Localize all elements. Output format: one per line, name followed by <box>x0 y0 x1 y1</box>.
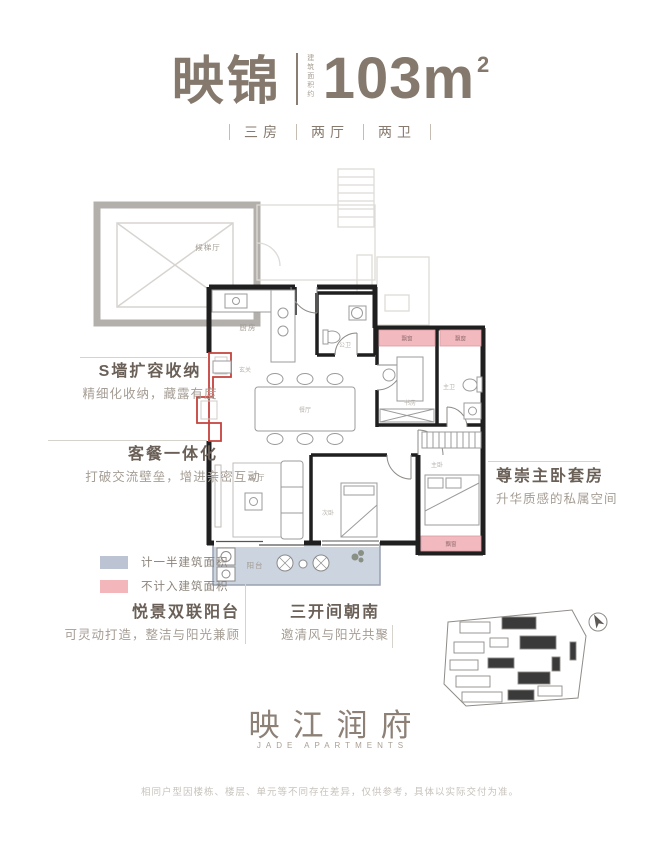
legend: 计一半建筑面积 不计入建筑面积 <box>100 554 229 602</box>
annotation-balcony-desc: 可灵动打造，整洁与阳光兼顾 <box>45 626 240 644</box>
spec-row: 三房 两厅 两卫 <box>0 124 660 140</box>
study: 书房 <box>380 357 434 422</box>
balcony: 阳台 <box>213 543 380 585</box>
project-logo: 映江润府 <box>0 700 660 745</box>
area-superscript: 2 <box>477 52 490 77</box>
annotation-south-desc: 邀清风与阳光共聚 <box>255 626 415 644</box>
lobby-label: 候梯厅 <box>195 242 221 252</box>
kitchen-label: 厨房 <box>240 322 257 332</box>
area-number: 103m <box>323 46 475 111</box>
annotation-balcony-title: 悦景双联阳台 <box>45 603 240 623</box>
legend-excluded-label: 不计入建筑面积 <box>141 578 229 594</box>
disclaimer-text: 相同户型因楼栋、楼层、单元等不同存在差异，仅供参考，具体以实际交付为准。 <box>0 784 660 798</box>
guest-bathroom: 公卫 <box>323 306 366 349</box>
annotation-balcony: 悦景双联阳台 可灵动打造，整洁与阳光兼顾 <box>45 603 240 644</box>
master-bathroom: 主卫 <box>443 377 482 419</box>
legend-excluded-swatch <box>100 580 128 593</box>
dining-label: 餐厅 <box>299 406 311 414</box>
leader-line-balcony <box>245 572 246 644</box>
annotation-dining-title: 客餐一体化 <box>28 445 318 465</box>
annotation-dining: 客餐一体化 打破交流壁垒，增进亲密互动 <box>28 445 318 486</box>
annotation-s-wall-desc: 精细化收纳，藏露有度 <box>35 385 265 403</box>
dining-room: 餐厅 <box>255 374 355 445</box>
leader-line-s-wall <box>80 357 207 358</box>
area-prefix-label: 建筑面积约 <box>305 54 315 102</box>
header: 映锦 建筑面积约 103m2 <box>0 50 660 108</box>
second-bedroom: 次卧 <box>322 483 377 537</box>
bay-window-label: 飘窗 <box>401 335 413 343</box>
header-divider <box>296 53 298 105</box>
spec-bedrooms: 三房 <box>229 124 296 140</box>
annotation-south: 三开间朝南 邀清风与阳光共聚 <box>255 603 415 644</box>
bay-window-label: 飘窗 <box>445 540 457 548</box>
area-value: 103m2 <box>323 50 489 108</box>
legend-half-area-swatch <box>100 556 128 569</box>
bay-window-label: 飘窗 <box>455 335 467 343</box>
compass-icon <box>589 612 607 631</box>
leader-line-dining <box>48 440 207 441</box>
master-bath-label: 主卫 <box>443 383 455 391</box>
project-logo-en: JADE APARTMENTS <box>0 741 660 750</box>
spec-halls: 两厅 <box>296 124 363 140</box>
annotation-south-title: 三开间朝南 <box>255 603 415 623</box>
floorplan-poster: 映锦 建筑面积约 103m2 三房 两厅 两卫 候梯厅 <box>0 0 660 841</box>
guest-bath-label: 公卫 <box>339 342 351 349</box>
annotation-s-wall: S墙扩容收纳 精细化收纳，藏露有度 <box>35 362 265 403</box>
site-buildings <box>450 617 576 702</box>
annotation-master: 尊崇主卧套房 升华质感的私属空间 <box>496 467 656 508</box>
legend-half-area-label: 计一半建筑面积 <box>141 554 229 570</box>
annotation-s-wall-title: S墙扩容收纳 <box>35 362 265 382</box>
second-bedroom-label: 次卧 <box>322 509 334 517</box>
leader-line-master <box>488 461 600 462</box>
annotation-dining-desc: 打破交流壁垒，增进亲密互动 <box>28 468 318 486</box>
plan-name: 映锦 <box>172 56 282 108</box>
legend-half-area: 计一半建筑面积 <box>100 554 229 570</box>
annotation-master-desc: 升华质感的私属空间 <box>496 490 656 508</box>
balcony-label: 阳台 <box>247 560 264 570</box>
spec-baths: 两卫 <box>363 124 431 140</box>
balcony-openings <box>214 539 379 547</box>
master-bedroom: 主卧 <box>422 432 481 525</box>
annotation-master-title: 尊崇主卧套房 <box>496 467 656 487</box>
master-bedroom-label: 主卧 <box>431 461 443 469</box>
legend-excluded-area: 不计入建筑面积 <box>100 578 229 594</box>
study-label: 书房 <box>404 399 416 407</box>
